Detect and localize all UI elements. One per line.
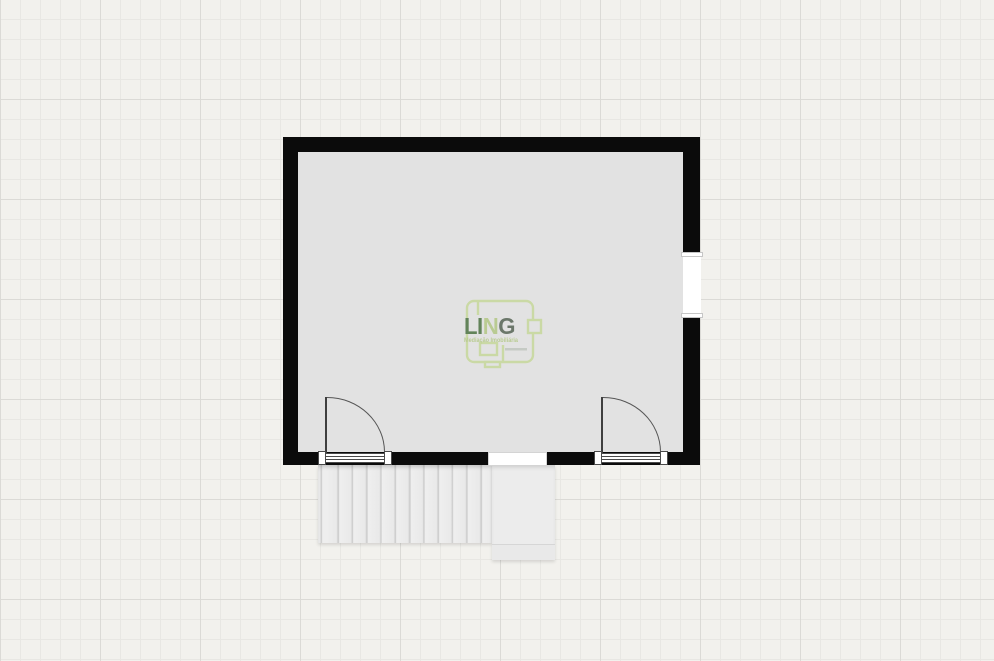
landing[interactable] [492, 465, 555, 560]
landing-lower-step [492, 545, 555, 560]
floorplan-canvas[interactable]: { "canvas": { "background_color": "#f2f1… [0, 0, 994, 661]
door-right-threshold[interactable] [602, 453, 660, 463]
door-right-jamb-right [660, 451, 668, 465]
window[interactable] [683, 253, 701, 318]
window-jamb-bottom [681, 313, 703, 318]
staircase[interactable] [318, 465, 492, 543]
door-left-jamb-left [318, 451, 326, 465]
window-jamb-top [681, 252, 703, 257]
door-right-jamb-left [594, 451, 602, 465]
door-left-jamb-right [384, 451, 392, 465]
door-left-threshold[interactable] [326, 453, 384, 463]
wall-opening[interactable] [488, 452, 547, 466]
